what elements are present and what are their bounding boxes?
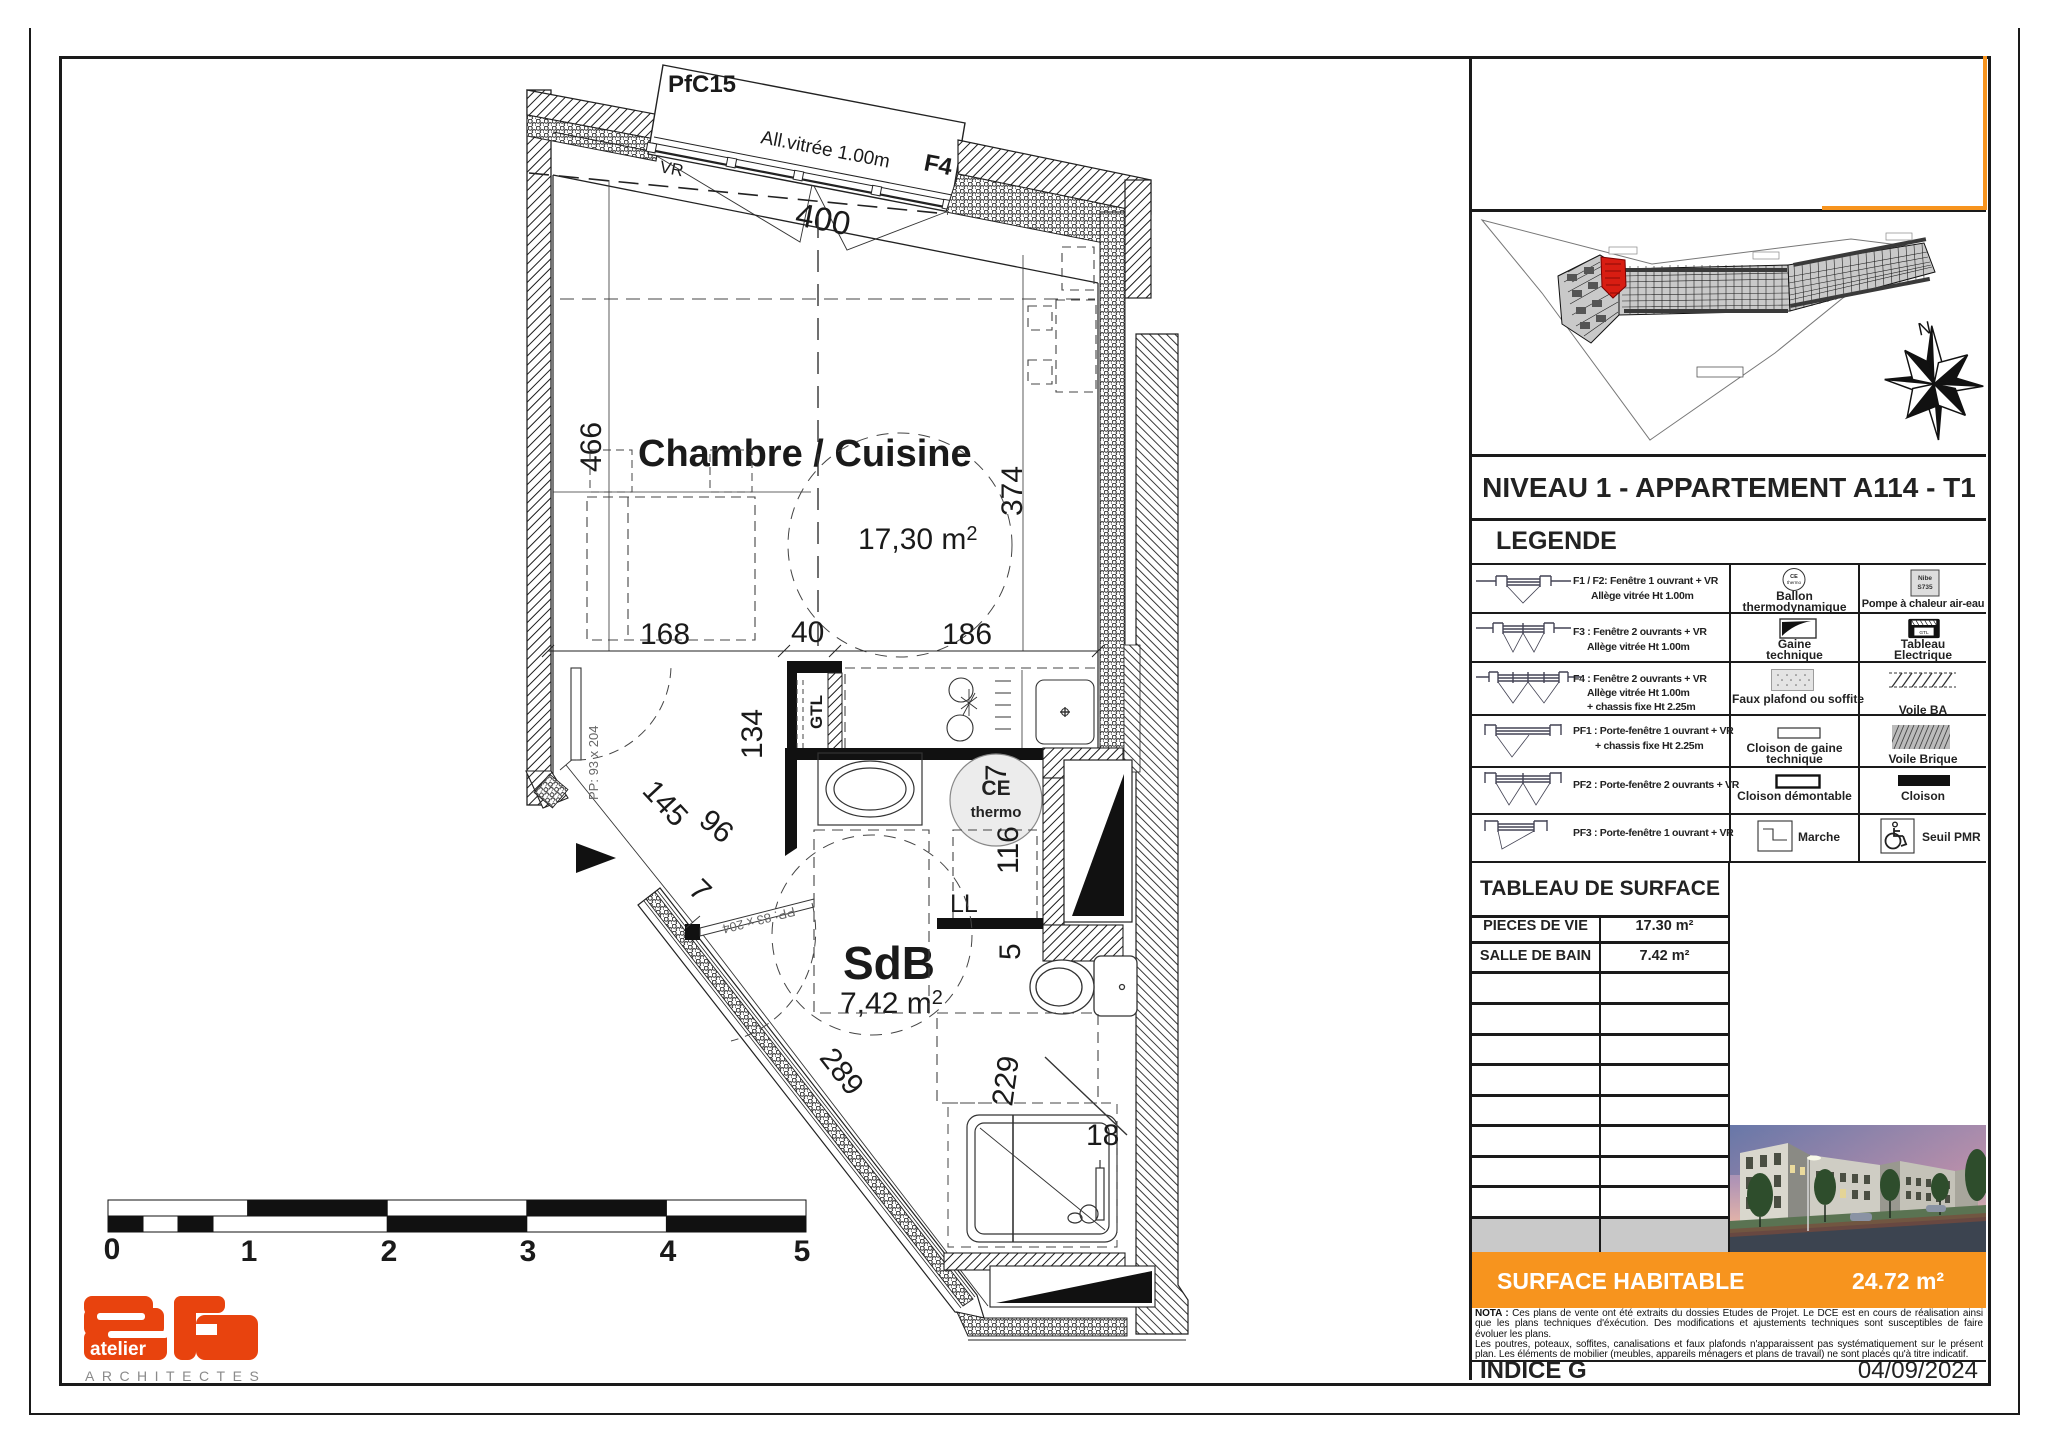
svg-text:7: 7: [682, 873, 717, 908]
svg-text:PfC15: PfC15: [668, 71, 736, 98]
svg-text:ARCHITECTES: ARCHITECTES: [85, 1368, 266, 1384]
svg-text:VR: VR: [658, 157, 685, 180]
svg-text:thermo: thermo: [971, 804, 1022, 821]
svg-text:thermo: thermo: [1787, 580, 1802, 585]
svg-text:229: 229: [986, 1054, 1026, 1108]
svg-text:374: 374: [996, 466, 1029, 516]
svg-text:Chambre / Cuisine: Chambre / Cuisine: [638, 433, 972, 475]
svg-text:4: 4: [660, 1235, 677, 1268]
svg-text:168: 168: [640, 618, 690, 651]
svg-text:145: 145: [636, 774, 694, 833]
svg-text:116: 116: [992, 826, 1025, 874]
svg-text:GTL: GTL: [1919, 630, 1929, 636]
svg-text:96: 96: [693, 803, 740, 850]
svg-text:18: 18: [1086, 1119, 1119, 1152]
svg-text:0: 0: [104, 1233, 121, 1266]
svg-text:466: 466: [575, 422, 608, 472]
svg-text:F4: F4: [922, 149, 955, 181]
svg-text:LL: LL: [950, 890, 978, 918]
svg-text:S735: S735: [1917, 584, 1933, 591]
svg-text:134: 134: [736, 709, 769, 759]
svg-text:17,30 m2: 17,30 m2: [858, 523, 978, 556]
svg-text:5: 5: [794, 1235, 811, 1268]
svg-text:3: 3: [520, 1235, 537, 1268]
svg-text:atelier: atelier: [90, 1339, 147, 1360]
svg-text:Nibe: Nibe: [1918, 575, 1932, 582]
svg-text:289: 289: [813, 1042, 870, 1102]
svg-text:SdB: SdB: [843, 937, 935, 989]
svg-text:7,42 m2: 7,42 m2: [840, 987, 943, 1020]
svg-text:5: 5: [994, 943, 1027, 960]
svg-text:GTL: GTL: [807, 695, 826, 729]
svg-text:2: 2: [381, 1235, 398, 1268]
svg-text:186: 186: [942, 618, 992, 651]
svg-text:PP: 93 x 204: PP: 93 x 204: [586, 726, 601, 800]
svg-text:1: 1: [241, 1235, 258, 1268]
svg-text:PP: 83 x 204: PP: 83 x 204: [721, 904, 797, 937]
svg-text:40: 40: [791, 616, 824, 649]
svg-text:7: 7: [980, 764, 1013, 781]
